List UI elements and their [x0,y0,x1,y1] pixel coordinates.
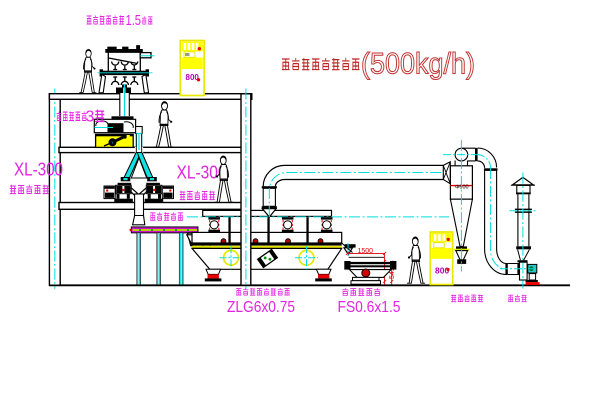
svg-text:(500kg/h): (500kg/h) [361,48,475,81]
svg-text:ZLG6x0.75: ZLG6x0.75 [227,299,295,316]
svg-text:1.5: 1.5 [126,12,142,29]
svg-text:1500: 1500 [358,248,374,255]
svg-text:XL-300: XL-300 [14,159,63,180]
svg-text:3: 3 [86,109,95,126]
svg-text:FS0.6x1.5: FS0.6x1.5 [338,299,401,316]
svg-text:XL-300: XL-300 [177,162,227,183]
